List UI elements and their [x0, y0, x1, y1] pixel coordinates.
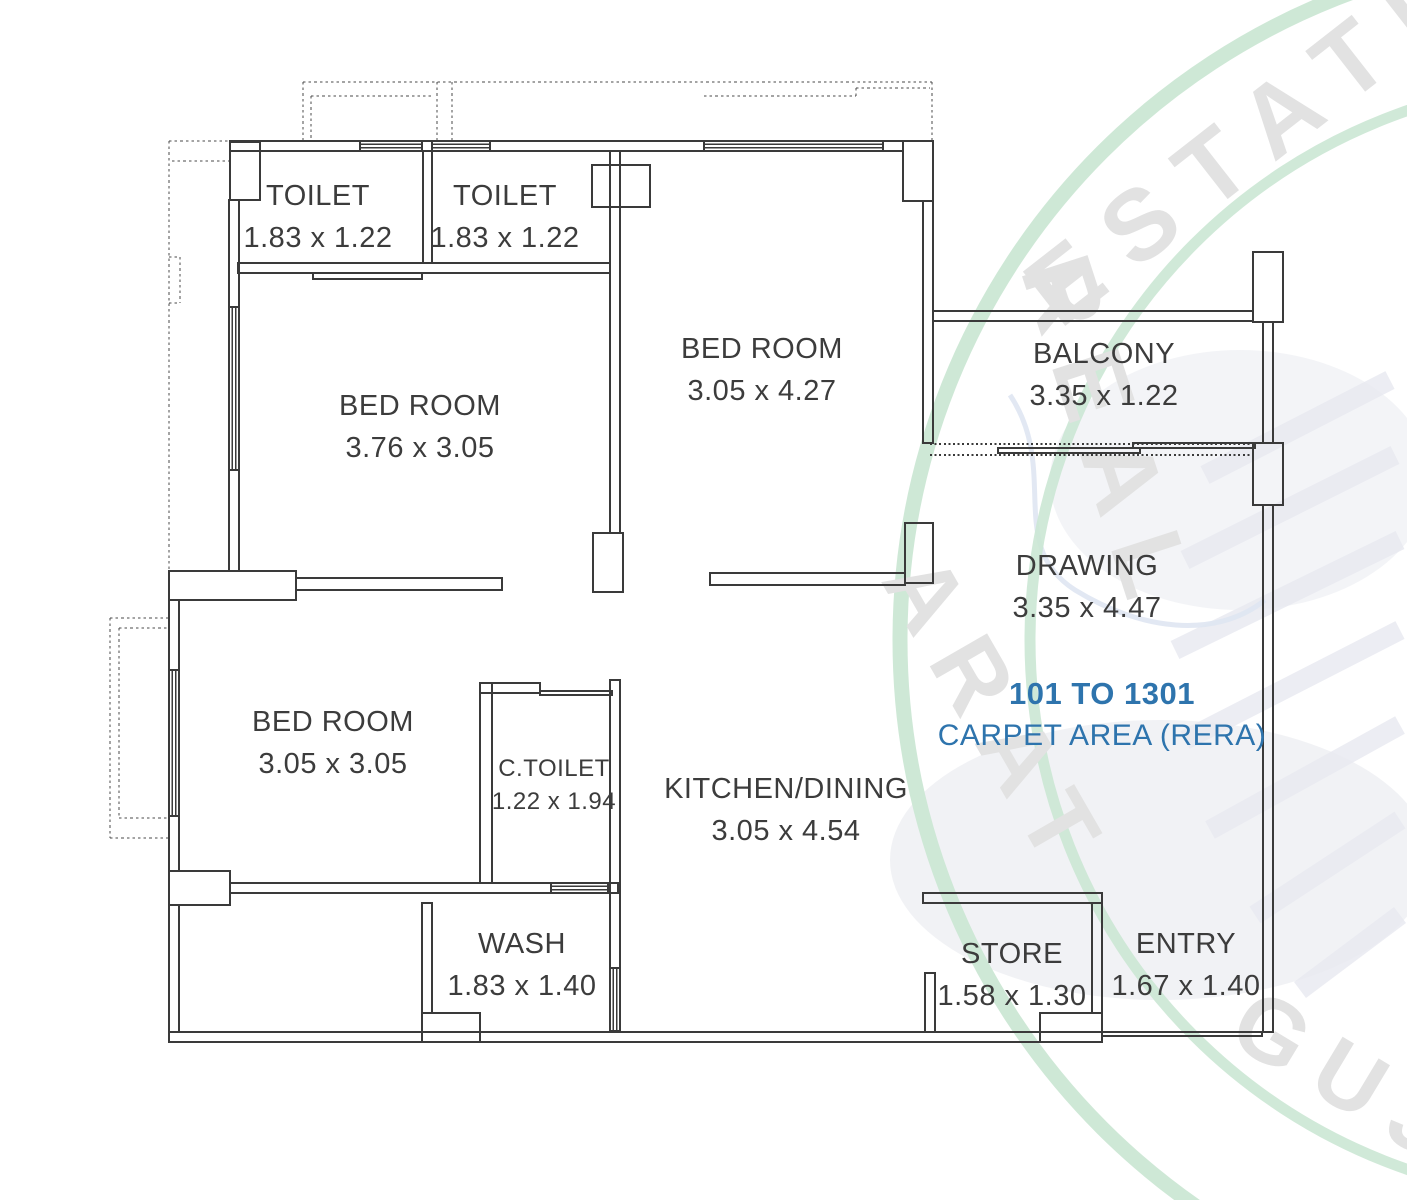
window: [610, 968, 620, 1031]
column: [903, 141, 933, 201]
room-label-drawing: DRAWING 3.35 x 4.47: [1013, 550, 1162, 626]
room-label-entry: ENTRY 1.67 x 1.40: [1112, 928, 1261, 1004]
room-label-store: STORE 1.58 x 1.30: [938, 938, 1087, 1014]
room-dims: 3.05 x 3.05: [252, 748, 414, 781]
room-label-c-toilet: C.TOILET 1.22 x 1.94: [492, 755, 616, 815]
room-name: BED ROOM: [681, 333, 843, 366]
room-dims: 3.05 x 4.54: [664, 815, 908, 848]
room-name: KITCHEN/DINING: [664, 773, 908, 806]
room-dims: 1.83 x 1.40: [448, 970, 597, 1003]
entry-threshold: [1102, 1032, 1262, 1036]
room-name: TOILET: [244, 180, 393, 213]
floor-plan-page: ESTATE REAL ARAT GUJ: [0, 0, 1407, 1200]
floorplan-walls: [0, 0, 1407, 1200]
room-name: ENTRY: [1112, 928, 1261, 961]
column: [169, 871, 230, 905]
window: [432, 141, 490, 151]
room-name: TOILET: [431, 180, 580, 213]
unit-label: 101 TO 1301 CARPET AREA (RERA): [938, 676, 1267, 753]
window: [551, 883, 608, 893]
column: [169, 571, 296, 600]
column: [1253, 252, 1283, 322]
room-dims: 1.83 x 1.22: [431, 222, 580, 255]
room-name: BED ROOM: [252, 706, 414, 739]
room-label-toilet-2: TOILET 1.83 x 1.22: [431, 180, 580, 256]
column: [1040, 1013, 1102, 1042]
room-label-kitchen-dining: KITCHEN/DINING 3.05 x 4.54: [664, 773, 908, 849]
column: [1253, 443, 1283, 505]
unit-range: 101 TO 1301: [938, 676, 1267, 712]
room-dims: 1.22 x 1.94: [492, 788, 616, 816]
column: [593, 533, 623, 592]
room-label-bedroom-left: BED ROOM 3.76 x 3.05: [339, 390, 501, 466]
sliding-window: [930, 443, 1255, 455]
room-name: BALCONY: [1030, 338, 1179, 371]
column: [905, 523, 933, 583]
room-dims: 1.67 x 1.40: [1112, 970, 1261, 1003]
room-dims: 3.35 x 1.22: [1030, 380, 1179, 413]
column: [422, 1013, 480, 1042]
room-name: WASH: [448, 928, 597, 961]
window: [169, 670, 179, 816]
room-dims: 1.83 x 1.22: [244, 222, 393, 255]
room-name: BED ROOM: [339, 390, 501, 423]
room-dims: 3.35 x 4.47: [1013, 592, 1162, 625]
room-dims: 3.05 x 4.27: [681, 375, 843, 408]
window: [360, 141, 422, 151]
room-label-toilet-1: TOILET 1.83 x 1.22: [244, 180, 393, 256]
room-label-wash: WASH 1.83 x 1.40: [448, 928, 597, 1004]
room-label-bedroom-top: BED ROOM 3.05 x 4.27: [681, 333, 843, 409]
column: [592, 165, 650, 207]
room-name: DRAWING: [1013, 550, 1162, 583]
window: [704, 141, 883, 151]
carpet-area-label: CARPET AREA (RERA): [938, 719, 1267, 754]
room-label-balcony: BALCONY 3.35 x 1.22: [1030, 338, 1179, 414]
room-name: STORE: [938, 938, 1087, 971]
room-dims: 3.76 x 3.05: [339, 432, 501, 465]
room-name: C.TOILET: [492, 755, 616, 783]
window: [229, 307, 239, 470]
room-label-bedroom-bottom: BED ROOM 3.05 x 3.05: [252, 706, 414, 782]
room-dims: 1.58 x 1.30: [938, 980, 1087, 1013]
